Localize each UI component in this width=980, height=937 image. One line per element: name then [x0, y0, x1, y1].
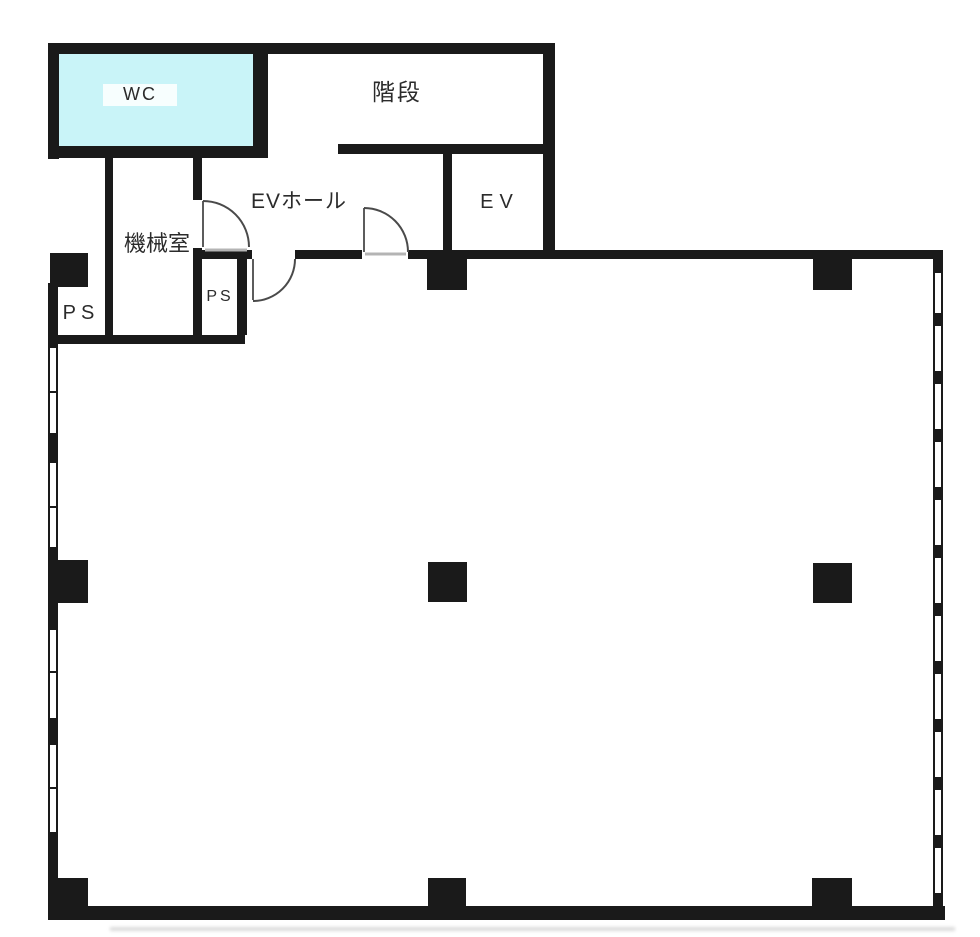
- wall-left-seg-3: [48, 718, 58, 745]
- ev-hall-label: EVホール: [224, 190, 374, 213]
- window-mullion-tick: [48, 787, 58, 789]
- window-mullion: [933, 371, 943, 384]
- column: [48, 560, 88, 603]
- window-mullion-tick: [48, 391, 58, 393]
- column: [813, 257, 852, 290]
- pipe-space-center-label: PS: [197, 288, 243, 306]
- window-mullion-tick: [48, 671, 58, 673]
- wall-wc-right: [253, 43, 268, 158]
- column: [812, 878, 852, 909]
- column: [813, 563, 852, 603]
- wall-bottom-outer: [48, 906, 945, 920]
- wall-wc-bottom: [48, 146, 268, 158]
- window-mullion: [933, 313, 943, 326]
- pipe-space-left-label: PS: [52, 302, 110, 324]
- door-arc-main-room: [253, 259, 295, 301]
- column: [428, 562, 467, 602]
- column: [48, 878, 88, 910]
- window-left-3: [48, 630, 58, 718]
- wc-room-label: WC: [103, 84, 177, 106]
- wall-top-outer: [48, 43, 555, 54]
- stairs-room-label: 階段: [347, 80, 447, 105]
- window-mullion: [933, 429, 943, 442]
- wall-ps-bottom: [48, 335, 245, 344]
- window-mullion-tick: [48, 506, 58, 508]
- wall-ev-left: [443, 144, 452, 259]
- column: [428, 878, 466, 909]
- elevator-room-label: EV: [462, 191, 537, 213]
- wall-wc-left: [48, 43, 59, 159]
- window-mullion: [933, 719, 943, 732]
- window-mullion: [933, 661, 943, 674]
- door-arc-ev-hall: [364, 208, 408, 252]
- scan-artifact-line: [110, 927, 955, 931]
- window-mullion: [933, 777, 943, 790]
- column: [50, 253, 88, 287]
- window-left-2: [48, 463, 58, 547]
- window-mullion: [933, 603, 943, 616]
- wall-main-top-b: [295, 250, 362, 259]
- window-mullion: [933, 487, 943, 500]
- wall-right-top: [933, 250, 943, 273]
- wall-right-bottom: [933, 893, 943, 918]
- column: [427, 255, 467, 290]
- window-mullion: [933, 835, 943, 848]
- window-right-strip: [933, 273, 943, 893]
- machine-room-label: 機械室: [118, 232, 196, 256]
- wall-main-top-a: [193, 250, 252, 259]
- wall-main-top-c: [408, 250, 942, 259]
- wall-left-seg-1: [48, 433, 58, 463]
- floor-plan: WC 階段 EVホール EV 機械室 PS PS: [0, 0, 980, 937]
- window-mullion: [933, 545, 943, 558]
- wall-machine-right-upper: [193, 150, 202, 200]
